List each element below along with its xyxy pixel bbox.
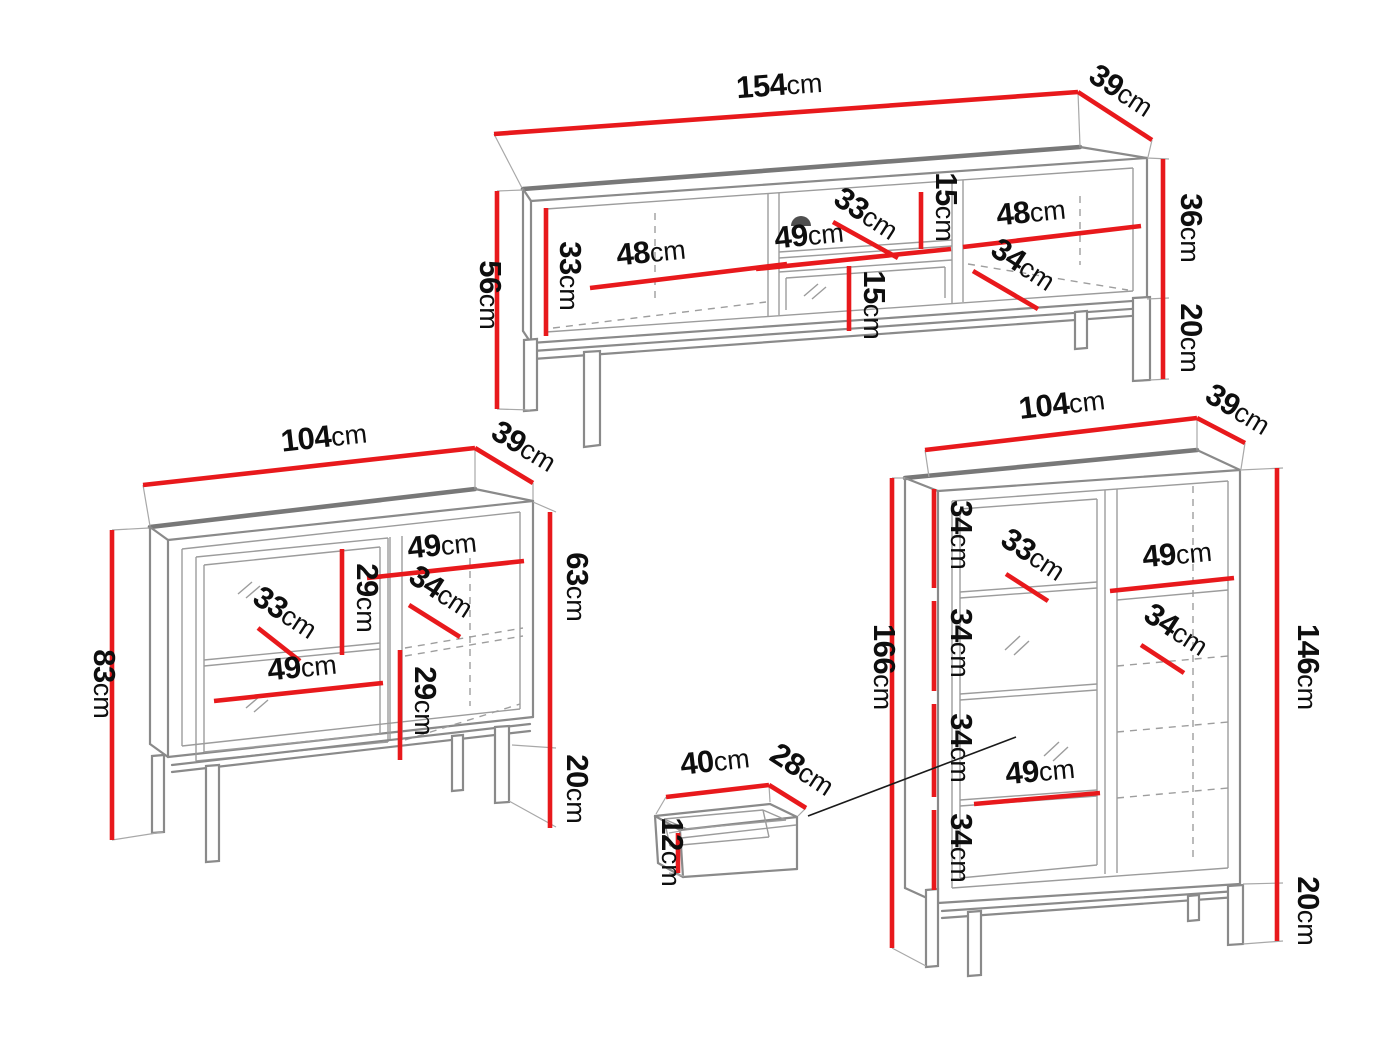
glass-reflection-icon (1005, 636, 1068, 761)
dim-label-tv-width: 154cm (735, 64, 824, 105)
dim-label-sb-total-height: 83cm (87, 649, 122, 718)
dim-label-tv-middle-width: 49cm (773, 214, 846, 256)
dim-label-cab-shelf-2: 34cm (944, 608, 979, 677)
dim-label-sb-right-width: 49cm (406, 524, 479, 566)
dim-line-drawer-width (666, 785, 769, 797)
dim-label-cab-leg-height: 20cm (1291, 876, 1326, 945)
dim-label-sb-body-height: 63cm (560, 552, 595, 621)
dim-label-cab-width: 104cm (1017, 381, 1107, 426)
dim-label-sb-right-shelf-spacing: 29cm (408, 666, 443, 735)
dim-label-tv-leg-height: 20cm (1174, 303, 1209, 372)
dim-label-tv-left-height: 33cm (553, 241, 588, 310)
dim-label-tv-depth: 39cm (1083, 57, 1160, 124)
dim-label-drawer-height: 12cm (655, 817, 690, 886)
dim-line-tv-right-width (963, 226, 1141, 247)
dim-line-sb-left-width (214, 683, 383, 701)
dim-label-cab-right-width: 49cm (1141, 533, 1214, 574)
glass-reflection-icon (804, 284, 826, 299)
furniture-dimension-diagram: 154cm 39cm 56cm 36cm 20cm 48cm 33cm 49cm… (0, 0, 1390, 1043)
dim-line-cab-right-width (1110, 578, 1234, 591)
dim-line-drawer-depth (769, 785, 806, 808)
dim-label-sb-left-width: 49cm (266, 646, 339, 688)
diagram-canvas: 154cm 39cm 56cm 36cm 20cm 48cm 33cm 49cm… (0, 0, 1390, 1043)
dim-label-tv-right-width: 48cm (995, 191, 1068, 233)
dim-label-tv-top-shelf: 15cm (929, 172, 964, 241)
dim-label-drawer-width: 40cm (678, 739, 751, 782)
sideboard: 104cm 39cm 83cm 63cm 20cm 29cm 33cm 49cm… (87, 413, 595, 862)
dim-label-cab-shelf-1: 34cm (944, 500, 979, 569)
dim-label-cab-left-depth: 33cm (995, 521, 1072, 588)
dim-label-tv-body-height: 36cm (1174, 193, 1209, 262)
dim-label-sb-leg-height: 20cm (560, 754, 595, 823)
dim-label-sb-left-shelf-spacing: 29cm (350, 563, 385, 632)
dim-label-cab-shelf-3: 34cm (944, 713, 979, 782)
display-cabinet: 104cm 39cm 166cm 146cm 20cm 34cm 34cm 34… (867, 376, 1326, 976)
dim-label-cab-body-height: 146cm (1291, 624, 1326, 710)
dim-label-sb-left-depth: 33cm (247, 579, 324, 646)
dim-label-cab-left-width: 49cm (1004, 750, 1077, 791)
dim-label-tv-bottom-shelf: 15cm (857, 270, 892, 339)
cabinet-legs (926, 885, 1243, 976)
dim-label-sb-depth: 39cm (486, 413, 564, 479)
dim-label-sb-width: 104cm (279, 414, 369, 458)
dim-label-cab-depth: 39cm (1200, 376, 1278, 442)
dim-label-cab-total-height: 166cm (867, 624, 902, 710)
dim-label-cab-shelf-4: 34cm (944, 813, 979, 882)
dim-label-drawer-depth: 28cm (764, 736, 841, 803)
dim-line-cab-width (925, 418, 1197, 450)
dim-label-tv-total-height: 56cm (473, 260, 508, 329)
dim-label-tv-left-width: 48cm (615, 231, 688, 273)
